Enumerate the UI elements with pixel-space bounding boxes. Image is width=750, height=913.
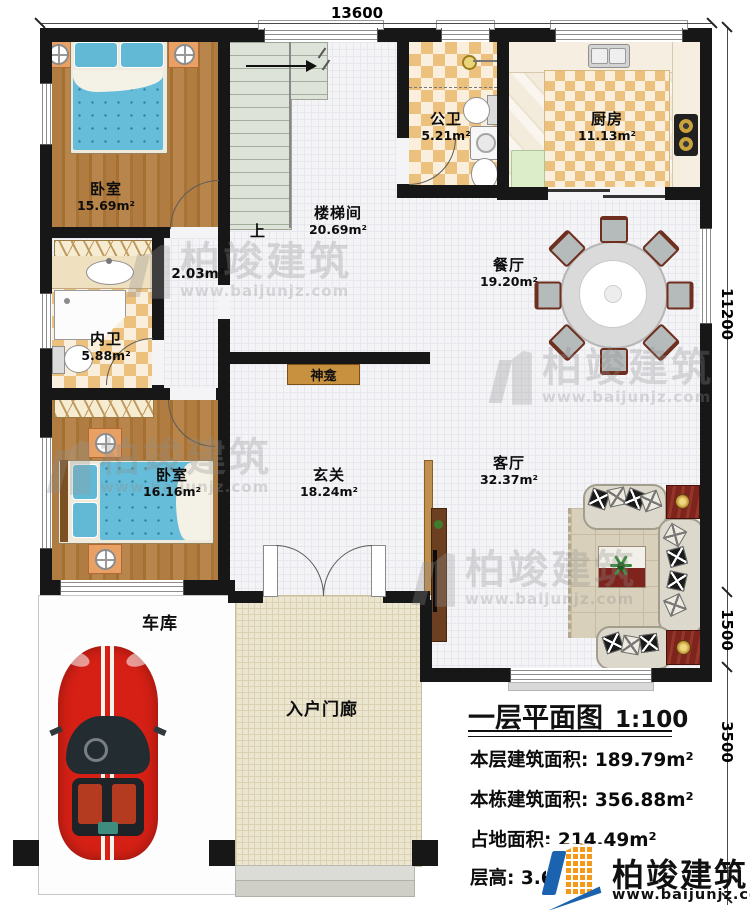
- stair-flight: [228, 42, 292, 230]
- shower-partition-line: [409, 87, 497, 88]
- dim-line-top: [40, 23, 712, 24]
- stairs-up-label: 上: [246, 222, 270, 240]
- sofa-pillow: [639, 633, 659, 653]
- room-label-porch: 入户门廊: [242, 700, 402, 720]
- window-sill: [508, 682, 654, 691]
- dim-right-lower-label: 3500: [718, 714, 736, 770]
- pillar: [412, 840, 438, 866]
- sliding-door-leaf: [603, 195, 665, 198]
- entry-door-leaf: [371, 545, 386, 597]
- brand-logo-icon: [546, 844, 606, 906]
- faucet-icon: [106, 258, 112, 264]
- room-label-kitchen: 厨房 11.13m²: [547, 110, 667, 143]
- area-row-building: 本栋建筑面积: 356.88m²: [470, 786, 694, 812]
- bed2-pillow: [72, 502, 98, 538]
- chair: [600, 348, 628, 375]
- window-right-dining: [700, 228, 712, 324]
- room-label-bedroom2: 卧室 16.16m²: [112, 466, 232, 499]
- wardrobe2: [54, 398, 154, 418]
- shrine-box: 神龛: [287, 364, 360, 385]
- room-label-bedroom1: 卧室 15.69m²: [46, 180, 166, 213]
- brand-url: www.baijunjz.com: [612, 887, 750, 903]
- car-engine-detail: [112, 784, 136, 824]
- room-label-foyer: 玄关 18.24m²: [269, 466, 389, 499]
- plant-center: [617, 562, 625, 570]
- towel-hook-icon: [462, 55, 477, 70]
- wall-foyer-bottom-left: [228, 591, 263, 603]
- pillar: [209, 840, 235, 866]
- floor-plan: 神龛: [0, 0, 750, 913]
- lamp-icon: [95, 549, 116, 570]
- shrine-label: 神龛: [310, 365, 336, 384]
- public-bath-door-opening: [397, 138, 409, 184]
- room-label-garage: 车库: [100, 614, 220, 634]
- window-left-bath: [40, 293, 52, 349]
- bedroom2-door-opening: [170, 388, 216, 400]
- wall-right: [700, 28, 712, 682]
- area-row-floor: 本层建筑面积: 189.79m²: [470, 746, 694, 772]
- lamp-icon: [174, 44, 195, 65]
- dim-right-mid-label: 1500: [718, 602, 736, 658]
- stair-direction-line: [246, 65, 306, 67]
- room-label-stairwell: 楼梯间 20.69m²: [278, 204, 398, 237]
- corridor-opening: [218, 285, 230, 319]
- dim-top-label: 13600: [317, 4, 397, 22]
- window-left-bedroom1: [40, 83, 52, 145]
- table-ornament-icon: [676, 640, 691, 655]
- burner-icon: [679, 137, 693, 151]
- pillar: [13, 840, 39, 866]
- sofa-pillow: [666, 570, 687, 591]
- lamp-icon: [95, 433, 116, 454]
- plant-icon: [434, 520, 443, 529]
- window-top-bath: [441, 28, 490, 42]
- wall-kitchen-left: [497, 42, 509, 200]
- bed1-pillow: [120, 42, 164, 68]
- porch-floor: [235, 595, 422, 867]
- shower-drain-icon: [64, 298, 70, 304]
- cutting-board: [511, 150, 545, 188]
- car-engine-detail: [78, 784, 102, 824]
- dim-line-right: [727, 28, 728, 905]
- sink-bowl: [609, 48, 626, 64]
- sliding-door-leaf: [548, 189, 610, 192]
- shrine-wall: [228, 352, 430, 364]
- sink-bowl: [591, 48, 608, 64]
- room-label-living: 客厅 32.37m²: [449, 454, 569, 487]
- bed1-pillow: [74, 42, 118, 68]
- car-steering-wheel: [84, 738, 108, 762]
- corridor-area-label: 2.03m²: [158, 266, 238, 282]
- chair: [667, 282, 694, 310]
- bed2-headboard: [60, 460, 68, 542]
- stair-arrow-icon: [306, 60, 317, 72]
- dim-right-upper-label: 11200: [718, 286, 736, 342]
- window-living-bottom: [510, 668, 652, 682]
- car-engine-badge: [98, 822, 118, 834]
- chair: [600, 216, 628, 243]
- stair-railing: [289, 42, 291, 228]
- window-top-stair: [264, 28, 378, 42]
- dining-table-center: [604, 285, 622, 303]
- room-label-public-bath: 公卫 5.21m²: [396, 110, 496, 143]
- wall-private-bath-bottom: [40, 388, 164, 400]
- towel-bar: [473, 60, 497, 62]
- room-label-dining: 餐厅 19.20m²: [449, 256, 569, 289]
- window-top-kitchen: [555, 28, 683, 42]
- room-label-private-bath: 内卫 5.88m²: [56, 330, 156, 363]
- burner-icon: [679, 119, 693, 133]
- wall-public-bath-bottom: [397, 185, 509, 198]
- bed2-pillow: [72, 464, 98, 500]
- title-underline: [468, 730, 672, 737]
- tv-icon: [433, 550, 437, 612]
- window-bedroom2-garage: [60, 580, 184, 595]
- porch-step: [235, 880, 415, 897]
- window-left-bedroom2: [40, 437, 52, 549]
- table-ornament-icon: [675, 494, 690, 509]
